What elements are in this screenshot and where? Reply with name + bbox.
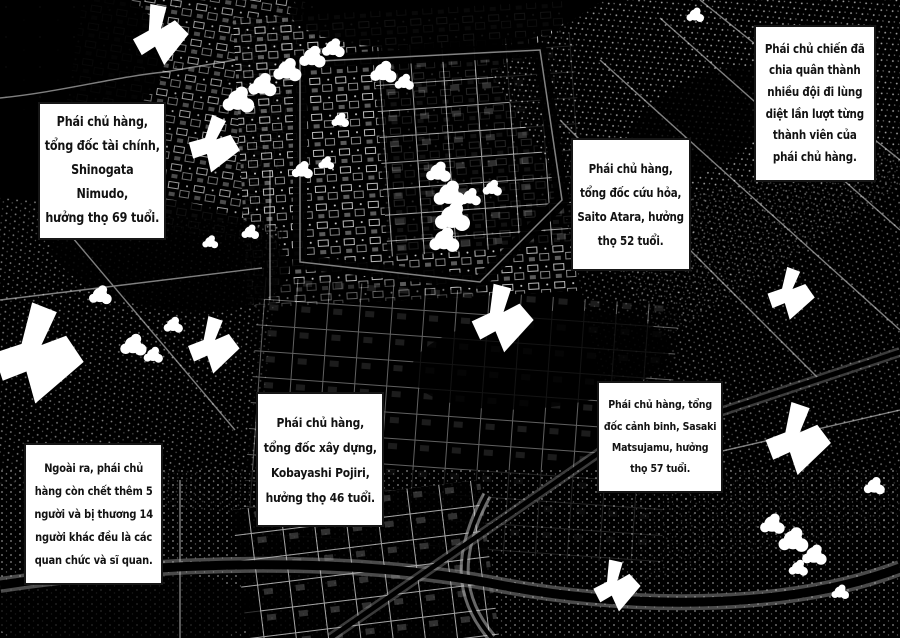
caption-text: Ngoài ra, phái chủ hàng còn chết thêm 5 … <box>30 457 157 572</box>
caption-box-police-chief: Phái chủ hàng, tổng đốc cảnh binh, Sasak… <box>597 381 723 493</box>
caption-box-additional-casualties: Ngoài ra, phái chủ hàng còn chết thêm 5 … <box>24 443 163 585</box>
manga-page: Phái chủ hàng, tổng đốc tài chính, Shino… <box>0 0 900 638</box>
caption-text: Phái chủ hàng, tổng đốc xây dựng, Kobaya… <box>262 410 378 510</box>
caption-text: Phái chủ hàng, tổng đốc cứu hỏa, Saito A… <box>577 157 685 253</box>
caption-box-fire-chief: Phái chủ hàng, tổng đốc cứu hỏa, Saito A… <box>571 138 691 271</box>
caption-text: Phái chủ hàng, tổng đốc tài chính, Shino… <box>44 111 160 231</box>
caption-text: Phái chủ chiến đã chia quân thành nhiều … <box>760 39 870 169</box>
caption-box-war-faction-hunt: Phái chủ chiến đã chia quân thành nhiều … <box>754 25 876 182</box>
caption-box-finance-minister: Phái chủ hàng, tổng đốc tài chính, Shino… <box>38 102 166 240</box>
caption-box-construction-chief: Phái chủ hàng, tổng đốc xây dựng, Kobaya… <box>256 392 384 527</box>
caption-text: Phái chủ hàng, tổng đốc cảnh binh, Sasak… <box>603 394 717 480</box>
